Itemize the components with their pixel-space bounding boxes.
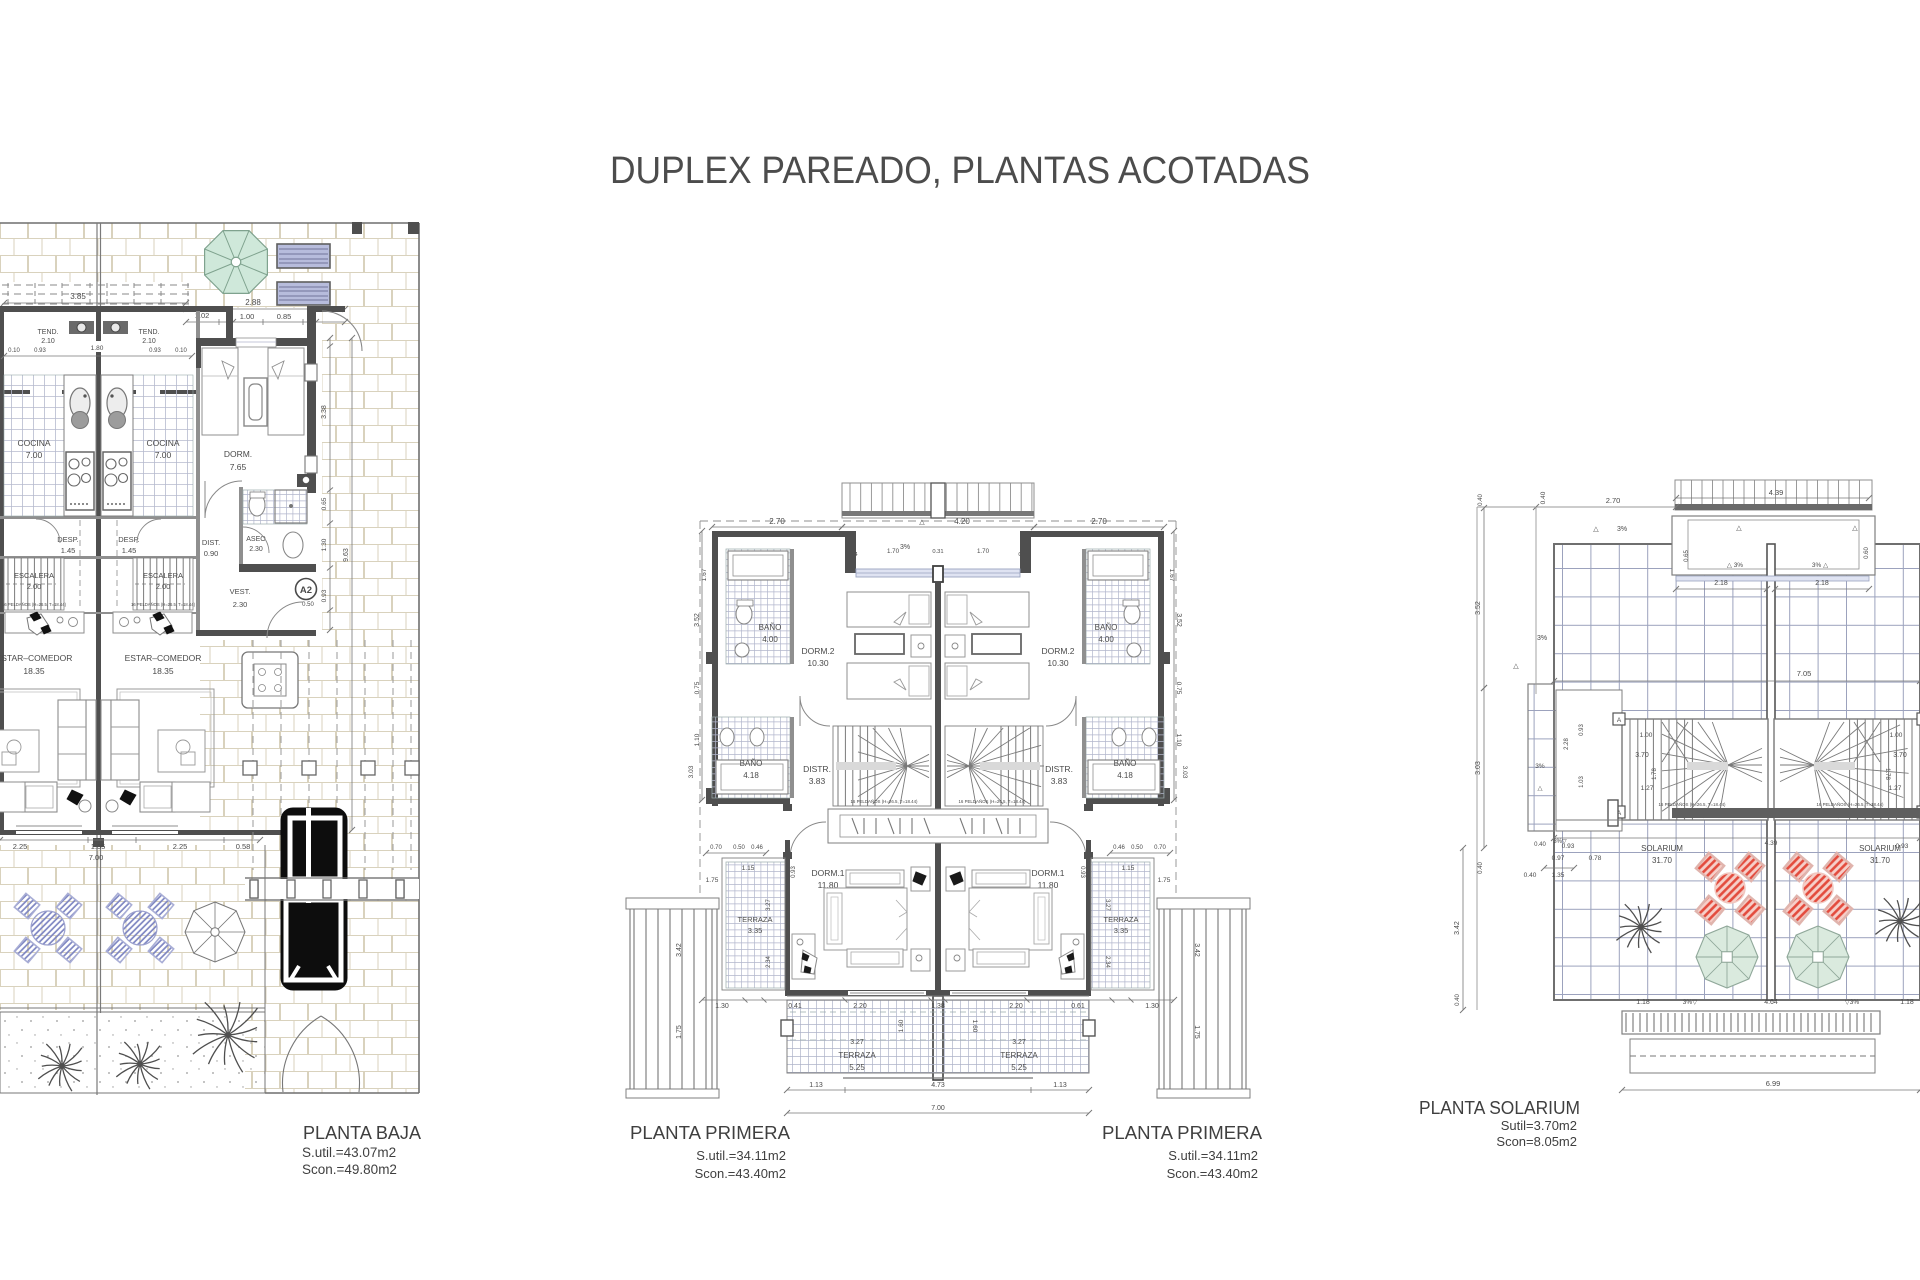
- svg-text:1.30: 1.30: [321, 538, 328, 551]
- svg-text:DISTR.: DISTR.: [803, 764, 831, 774]
- svg-text:0.93: 0.93: [1079, 866, 1085, 878]
- svg-text:0.50: 0.50: [733, 845, 745, 851]
- svg-text:DORM.2: DORM.2: [801, 646, 834, 656]
- svg-text:4.18: 4.18: [1117, 771, 1133, 780]
- svg-text:1.00: 1.00: [1890, 732, 1903, 739]
- svg-text:1.38: 1.38: [931, 1003, 945, 1010]
- svg-text:3.42: 3.42: [1454, 921, 1461, 935]
- svg-text:PLANTA PRIMERA: PLANTA PRIMERA: [630, 1123, 790, 1143]
- svg-text:4.00: 4.00: [1098, 635, 1114, 644]
- svg-text:ESTAR–COMEDOR: ESTAR–COMEDOR: [125, 653, 202, 663]
- svg-text:3.70: 3.70: [1635, 752, 1649, 759]
- svg-text:2.70: 2.70: [1091, 517, 1107, 526]
- svg-text:DORM.: DORM.: [224, 449, 252, 459]
- svg-text:3.27: 3.27: [1104, 899, 1110, 911]
- svg-text:16 PELDAÑOS (H=26.5, T=18.44): 16 PELDAÑOS (H=26.5, T=18.44): [958, 799, 1026, 804]
- svg-text:3.27: 3.27: [850, 1039, 864, 1046]
- svg-text:0.50: 0.50: [302, 602, 314, 608]
- svg-text:2.88: 2.88: [245, 298, 261, 307]
- svg-text:1.60: 1.60: [898, 1019, 905, 1032]
- svg-text:3.03: 3.03: [1181, 766, 1188, 779]
- svg-text:16 PELDAÑOS (H=26.5, T=18.44): 16 PELDAÑOS (H=26.5, T=18.44): [1658, 802, 1726, 807]
- svg-text:DORM.2: DORM.2: [1041, 646, 1074, 656]
- svg-text:0.93: 0.93: [34, 348, 46, 354]
- svg-text:TEND.: TEND.: [139, 329, 160, 336]
- svg-text:9.63: 9.63: [343, 548, 350, 562]
- svg-text:3%▽: 3%▽: [1683, 999, 1698, 1006]
- svg-text:1.45: 1.45: [122, 546, 137, 555]
- svg-text:3.83: 3.83: [1051, 776, 1068, 786]
- svg-text:Scon=8.05m2: Scon=8.05m2: [1496, 1134, 1577, 1149]
- svg-text:3%: 3%: [1535, 763, 1545, 770]
- svg-text:S.util.=34.11m2: S.util.=34.11m2: [1168, 1148, 1258, 1163]
- svg-text:18.35: 18.35: [23, 666, 45, 676]
- svg-text:3.27: 3.27: [766, 899, 772, 911]
- svg-text:18.35: 18.35: [152, 666, 174, 676]
- svg-text:0.78: 0.78: [1589, 855, 1602, 862]
- svg-text:0.90: 0.90: [204, 549, 219, 558]
- svg-text:0.93: 0.93: [1579, 724, 1585, 736]
- svg-text:0.40: 0.40: [1534, 842, 1546, 848]
- svg-text:1.03: 1.03: [1579, 776, 1585, 788]
- svg-text:0.61: 0.61: [1071, 1003, 1085, 1010]
- svg-text:4.64: 4.64: [1764, 999, 1778, 1006]
- svg-text:0.40: 0.40: [1455, 994, 1461, 1006]
- svg-text:1.13: 1.13: [1053, 1082, 1067, 1089]
- svg-text:7.00: 7.00: [89, 853, 104, 862]
- svg-text:1.78: 1.78: [1652, 768, 1658, 780]
- svg-text:3.52: 3.52: [1175, 613, 1182, 627]
- svg-text:1.75: 1.75: [1193, 1025, 1200, 1039]
- svg-text:TERRAZA: TERRAZA: [1103, 915, 1138, 924]
- svg-text:1.27: 1.27: [1889, 785, 1902, 792]
- svg-text:1.27: 1.27: [1641, 785, 1654, 792]
- svg-text:31.70: 31.70: [1870, 856, 1891, 865]
- svg-text:0.93: 0.93: [149, 348, 161, 354]
- svg-text:3%: 3%: [1537, 635, 1547, 642]
- svg-text:0.93: 0.93: [791, 866, 797, 878]
- svg-text:4.73: 4.73: [931, 1082, 945, 1089]
- svg-text:7.00: 7.00: [155, 450, 172, 460]
- svg-text:6.99: 6.99: [1766, 1079, 1781, 1088]
- svg-text:3.27: 3.27: [1012, 1039, 1026, 1046]
- svg-text:1.18: 1.18: [1636, 999, 1650, 1006]
- svg-text:16 PELDAÑOS (H=26.5, T=18.44): 16 PELDAÑOS (H=26.5, T=18.44): [2, 602, 67, 607]
- svg-text:4.18: 4.18: [743, 771, 759, 780]
- svg-text:5.25: 5.25: [1011, 1063, 1027, 1072]
- svg-text:1.15: 1.15: [1122, 865, 1135, 872]
- svg-text:1.10: 1.10: [1175, 734, 1182, 747]
- svg-text:0.93: 0.93: [1562, 843, 1575, 850]
- svg-text:2.30: 2.30: [233, 600, 248, 609]
- svg-text:4.20: 4.20: [954, 517, 970, 526]
- svg-text:COCINA: COCINA: [17, 438, 50, 448]
- svg-text:3.35: 3.35: [1114, 926, 1129, 935]
- svg-text:Scon.=43.40m2: Scon.=43.40m2: [695, 1166, 786, 1181]
- svg-text:Sutil=3.70m2: Sutil=3.70m2: [1501, 1118, 1577, 1133]
- svg-text:TERRAZA: TERRAZA: [1000, 1051, 1038, 1060]
- svg-text:0.97: 0.97: [1552, 855, 1565, 862]
- svg-text:△ 3%: △ 3%: [1727, 562, 1743, 569]
- svg-text:DESP.: DESP.: [118, 535, 140, 544]
- svg-text:2.28: 2.28: [1564, 738, 1570, 750]
- svg-text:0.70: 0.70: [710, 845, 722, 851]
- svg-text:2.30: 2.30: [249, 546, 263, 553]
- svg-text:3.52: 3.52: [1475, 601, 1482, 615]
- svg-text:3.42: 3.42: [1193, 943, 1200, 957]
- svg-text:0.46: 0.46: [1113, 845, 1125, 851]
- svg-text:BAÑO: BAÑO: [1095, 623, 1118, 632]
- svg-text:1.75: 1.75: [706, 877, 719, 884]
- svg-text:3.83: 3.83: [809, 776, 826, 786]
- svg-text:4.39: 4.39: [1769, 488, 1784, 497]
- svg-text:BAÑO: BAÑO: [740, 759, 763, 768]
- svg-text:TEND.: TEND.: [38, 329, 59, 336]
- svg-text:DISTR.: DISTR.: [1045, 764, 1073, 774]
- svg-text:1.00: 1.00: [1640, 732, 1653, 739]
- svg-text:3.35: 3.35: [748, 926, 763, 935]
- svg-text:1.70: 1.70: [887, 548, 900, 555]
- svg-text:0.70: 0.70: [1154, 845, 1166, 851]
- svg-text:1.18: 1.18: [1900, 999, 1914, 1006]
- svg-text:4.00: 4.00: [762, 635, 778, 644]
- svg-text:0.75: 0.75: [1175, 682, 1182, 695]
- svg-text:0.10: 0.10: [8, 348, 20, 354]
- svg-text:2.00: 2.00: [156, 582, 171, 591]
- svg-text:0.65: 0.65: [321, 497, 328, 510]
- svg-text:0.50: 0.50: [1131, 845, 1143, 851]
- svg-text:3% △: 3% △: [1812, 562, 1829, 569]
- svg-text:1.35: 1.35: [1552, 872, 1565, 879]
- svg-text:TERRAZA: TERRAZA: [838, 1051, 876, 1060]
- svg-text:7.00: 7.00: [931, 1105, 945, 1112]
- svg-text:△: △: [1513, 663, 1519, 670]
- svg-text:2.18: 2.18: [1714, 580, 1728, 587]
- svg-text:7.00: 7.00: [26, 450, 43, 460]
- svg-text:0.93: 0.93: [1896, 843, 1909, 850]
- svg-text:COCINA: COCINA: [146, 438, 179, 448]
- svg-text:3.70: 3.70: [1893, 752, 1907, 759]
- svg-text:3%: 3%: [1617, 526, 1627, 533]
- svg-text:2.25: 2.25: [13, 842, 28, 851]
- svg-text:10.30: 10.30: [807, 658, 829, 668]
- svg-text:Scon.=43.40m2: Scon.=43.40m2: [1167, 1166, 1258, 1181]
- svg-text:2.34: 2.34: [1104, 956, 1110, 968]
- svg-text:1.13: 1.13: [809, 1082, 823, 1089]
- svg-text:△: △: [919, 519, 925, 526]
- svg-text:0.60: 0.60: [1864, 547, 1870, 559]
- svg-text:10.30: 10.30: [1047, 658, 1069, 668]
- svg-text:△: △: [1852, 525, 1858, 532]
- svg-text:16 PELDAÑOS (H=26.5, T=18.44): 16 PELDAÑOS (H=26.5, T=18.44): [850, 799, 918, 804]
- svg-text:2.70: 2.70: [1606, 496, 1621, 505]
- svg-text:1.60: 1.60: [971, 1020, 978, 1033]
- svg-text:1.45: 1.45: [61, 546, 76, 555]
- svg-text:0.40: 0.40: [1524, 872, 1537, 879]
- svg-text:DORM.1: DORM.1: [1031, 868, 1064, 878]
- svg-text:31.70: 31.70: [1652, 856, 1673, 865]
- svg-text:3.85: 3.85: [70, 292, 86, 301]
- svg-text:3.03: 3.03: [688, 765, 695, 778]
- svg-text:1.30: 1.30: [715, 1003, 729, 1010]
- svg-text:1.70: 1.70: [977, 548, 990, 555]
- svg-text:TERRAZA: TERRAZA: [737, 915, 772, 924]
- svg-text:A2: A2: [300, 585, 312, 596]
- svg-text:0.31: 0.31: [932, 549, 943, 555]
- svg-text:BAÑO: BAÑO: [1114, 759, 1137, 768]
- svg-text:3%: 3%: [900, 544, 910, 551]
- svg-text:2.10: 2.10: [41, 338, 55, 345]
- svg-text:4.39: 4.39: [1765, 840, 1778, 847]
- svg-text:16 PELDAÑOS (H=26.5, T=18.44): 16 PELDAÑOS (H=26.5, T=18.44): [1816, 802, 1884, 807]
- svg-text:PLANTA SOLARIUM: PLANTA SOLARIUM: [1419, 1098, 1580, 1118]
- svg-text:0.75: 0.75: [694, 681, 701, 694]
- svg-text:7.65: 7.65: [230, 462, 247, 472]
- svg-text:1.75: 1.75: [676, 1025, 683, 1039]
- svg-text:0.85: 0.85: [277, 312, 292, 321]
- svg-text:2.34: 2.34: [766, 956, 772, 968]
- svg-text:PLANTA BAJA: PLANTA BAJA: [303, 1123, 421, 1143]
- svg-text:ESCALERA: ESCALERA: [143, 571, 183, 580]
- svg-text:ESCALERA: ESCALERA: [14, 571, 54, 580]
- svg-text:1.00: 1.00: [240, 312, 255, 321]
- svg-text:1.75: 1.75: [1158, 877, 1171, 884]
- svg-text:△: △: [1736, 525, 1742, 532]
- svg-text:VEST.: VEST.: [230, 587, 251, 596]
- svg-text:△: △: [1593, 526, 1599, 533]
- svg-text:A: A: [1617, 717, 1622, 724]
- svg-text:DORM.1: DORM.1: [811, 868, 844, 878]
- svg-text:0.46: 0.46: [751, 845, 763, 851]
- svg-text:DESP.: DESP.: [57, 535, 79, 544]
- svg-text:S.util.=34.11m2: S.util.=34.11m2: [696, 1148, 786, 1163]
- svg-text:0.41: 0.41: [788, 1003, 802, 1010]
- svg-text:2.25: 2.25: [173, 842, 188, 851]
- svg-text:SOLARIUM: SOLARIUM: [1641, 844, 1683, 853]
- svg-text:0.65: 0.65: [1684, 550, 1690, 562]
- svg-text:0.93: 0.93: [321, 589, 328, 602]
- svg-text:ESTAR–COMEDOR: ESTAR–COMEDOR: [0, 653, 72, 663]
- svg-text:3.03: 3.03: [1475, 761, 1482, 775]
- svg-text:▽3%: ▽3%: [1845, 999, 1860, 1006]
- svg-text:3.42: 3.42: [676, 943, 683, 957]
- svg-text:2.10: 2.10: [142, 338, 156, 345]
- svg-text:S.util.=43.07m2: S.util.=43.07m2: [302, 1145, 396, 1160]
- svg-text:DUPLEX PAREADO, PLANTAS ACOTAD: DUPLEX PAREADO, PLANTAS ACOTADAS: [610, 150, 1310, 192]
- svg-text:2.18: 2.18: [1815, 580, 1829, 587]
- svg-text:1.35: 1.35: [91, 842, 106, 851]
- svg-text:1.10: 1.10: [694, 733, 701, 746]
- svg-text:BAÑO: BAÑO: [759, 623, 782, 632]
- svg-text:5.25: 5.25: [849, 1063, 865, 1072]
- svg-text:3.52: 3.52: [694, 613, 701, 627]
- svg-text:0.10: 0.10: [175, 348, 187, 354]
- svg-text:2.00: 2.00: [27, 582, 42, 591]
- svg-text:1.80: 1.80: [91, 345, 104, 352]
- svg-text:Scon.=49.80m2: Scon.=49.80m2: [302, 1162, 397, 1177]
- svg-text:1.78: 1.78: [1884, 768, 1890, 780]
- svg-text:1.30: 1.30: [1145, 1003, 1159, 1010]
- svg-text:7.05: 7.05: [1797, 669, 1812, 678]
- svg-text:DIST.: DIST.: [202, 538, 220, 547]
- svg-text:16 PELDAÑOS (H=26.5, T=18.44): 16 PELDAÑOS (H=26.5, T=18.44): [131, 602, 196, 607]
- svg-text:0.40: 0.40: [1540, 491, 1547, 504]
- svg-text:1.15: 1.15: [742, 865, 755, 872]
- svg-text:2.70: 2.70: [769, 517, 785, 526]
- svg-text:2.20: 2.20: [1009, 1003, 1023, 1010]
- svg-text:PLANTA PRIMERA: PLANTA PRIMERA: [1102, 1123, 1262, 1143]
- svg-text:2.20: 2.20: [853, 1003, 867, 1010]
- svg-text:0.40: 0.40: [1478, 862, 1484, 874]
- svg-text:3.38: 3.38: [321, 405, 328, 419]
- svg-text:0.40: 0.40: [1478, 494, 1484, 506]
- svg-text:0.58: 0.58: [236, 842, 251, 851]
